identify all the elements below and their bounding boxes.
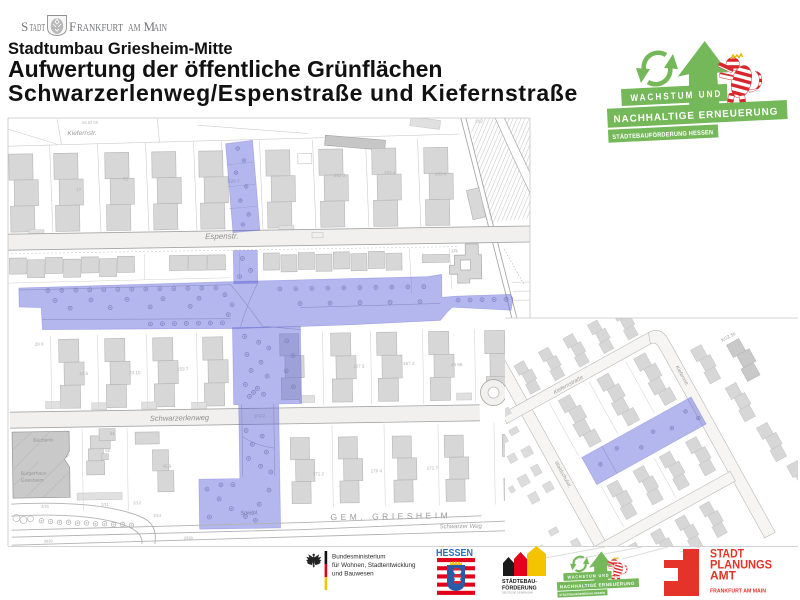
svg-text:187 3: 187 3 (353, 364, 365, 369)
svg-text:AIN: AIN (154, 23, 168, 34)
svg-text:2/12: 2/12 (133, 500, 142, 505)
svg-text:17: 17 (76, 187, 82, 192)
svg-text:Griesheim: Griesheim (21, 478, 44, 484)
svg-text:GEM. GRIESHEIM: GEM. GRIESHEIM (330, 510, 451, 522)
svg-text:66 62 58: 66 62 58 (82, 120, 98, 125)
svg-text:FÖRDERUNG: FÖRDERUNG (502, 585, 537, 592)
svg-text:Kiefernstr.: Kiefernstr. (67, 130, 97, 137)
svg-text:S: S (21, 19, 28, 34)
svg-text:HESSEN: HESSEN (436, 548, 473, 559)
svg-text:AM: AM (128, 23, 141, 34)
svg-text:Bücherei: Bücherei (33, 438, 53, 444)
svg-text:23 10: 23 10 (129, 370, 141, 375)
svg-text:153 7: 153 7 (177, 366, 189, 371)
svg-text:202 3: 202 3 (334, 173, 346, 178)
svg-text:FRANKFURT AM MAIN: FRANKFURT AM MAIN (710, 589, 766, 595)
svg-text:Espenstr.: Espenstr. (205, 232, 239, 242)
svg-text:für Wohnen, Stadtentwicklung: für Wohnen, Stadtentwicklung (332, 562, 416, 569)
svg-text:2/14: 2/14 (153, 513, 162, 518)
svg-text:171 7: 171 7 (427, 465, 439, 470)
svg-text:170 4: 170 4 (371, 468, 383, 473)
svg-text:45 9: 45 9 (163, 464, 172, 469)
svg-text:Bürgerhaus: Bürgerhaus (21, 471, 47, 477)
svg-text:2/25: 2/25 (41, 504, 50, 509)
svg-text:und Bauwesen: und Bauwesen (332, 571, 374, 578)
svg-text:RANKFURT: RANKFURT (77, 23, 123, 34)
svg-text:28 8: 28 8 (35, 342, 44, 347)
svg-text:2938: 2938 (184, 535, 194, 540)
svg-text:2939: 2939 (44, 539, 54, 544)
svg-text:STÄDTEBAU-: STÄDTEBAU- (502, 578, 537, 585)
svg-text:52: 52 (123, 176, 129, 181)
svg-text:171 2: 171 2 (313, 471, 325, 476)
svg-text:Spielpl.: Spielpl. (240, 510, 258, 516)
svg-text:DEUTSCHE GEMEINSAM: DEUTSCHE GEMEINSAM (502, 591, 533, 595)
svg-text:167 2: 167 2 (403, 361, 415, 366)
svg-text:TADT: TADT (30, 23, 46, 34)
svg-text:AMT: AMT (710, 571, 736, 583)
svg-text:2/11: 2/11 (101, 502, 109, 507)
svg-text:44 66: 44 66 (451, 362, 463, 367)
svg-text:221: 221 (451, 248, 459, 253)
svg-text:Schwarzer Weg: Schwarzer Weg (440, 524, 483, 531)
svg-text:Bundesministerium: Bundesministerium (332, 554, 386, 561)
svg-text:203 6: 203 6 (435, 171, 447, 176)
svg-text:Schwarzerlenweg: Schwarzerlenweg (150, 413, 210, 423)
svg-text:10 5: 10 5 (79, 371, 88, 376)
svg-text:202 4: 202 4 (384, 170, 396, 175)
svg-text:F: F (69, 19, 76, 34)
